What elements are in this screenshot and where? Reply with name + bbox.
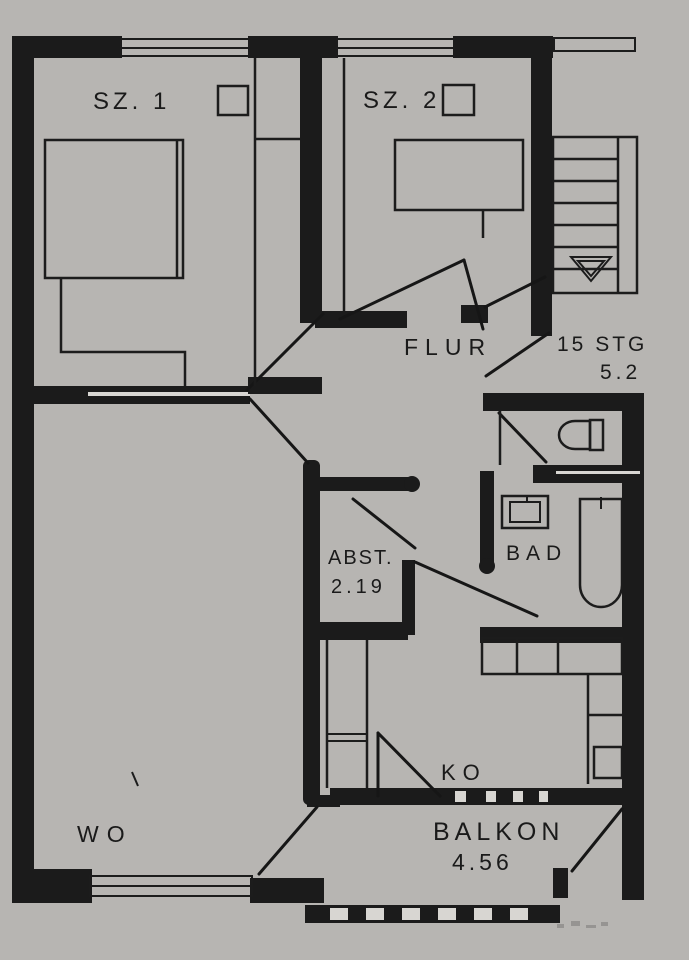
floor-plan-drawing: SZ. 1 SZ. 2 FLUR 15 STG 5.2 ABST. 2.19 B… [0, 0, 689, 960]
square-marker-sz1 [218, 86, 248, 115]
stairs-steps-label: 15 STG [557, 333, 647, 356]
room-label-sz2: SZ. 2 [363, 87, 440, 114]
window-symbol-wo [90, 876, 252, 896]
window-symbol-sz2 [337, 39, 454, 56]
stairs-symbol [553, 38, 637, 293]
room-label-wo: WO [77, 821, 133, 847]
sink-symbol-bad [502, 496, 548, 528]
room-area-balkon: 4.56 [452, 849, 513, 875]
floor-plan-photo: SZ. 1 SZ. 2 FLUR 15 STG 5.2 ABST. 2.19 B… [0, 0, 689, 960]
bathtub-symbol [580, 497, 622, 607]
room-label-sz1: SZ. 1 [93, 88, 170, 115]
room-label-flur: FLUR [404, 334, 492, 360]
window-symbol-sz1 [121, 39, 249, 56]
window-symbols [90, 39, 454, 896]
square-marker-sz2 [443, 85, 474, 115]
room-area-abst: 2.19 [331, 576, 386, 598]
room-label-balkon: BALKON [433, 818, 564, 846]
stray-mark [132, 772, 138, 786]
duct-strip [327, 640, 367, 788]
stairs-measure-label: 5.2 [600, 361, 641, 384]
sink-symbol-ko [594, 747, 622, 778]
toilet-symbol [559, 420, 603, 450]
kitchen-counter-symbol [482, 638, 622, 784]
room-label-ko: KO [441, 760, 487, 785]
ghost-marks [557, 921, 608, 928]
room-label-abst: ABST. [328, 547, 394, 569]
room-label-bad: BAD [506, 542, 567, 565]
bed-symbol-sz2 [395, 140, 523, 238]
closet-strip-sz1 [255, 58, 300, 386]
bed-symbol-sz1 [45, 140, 185, 386]
